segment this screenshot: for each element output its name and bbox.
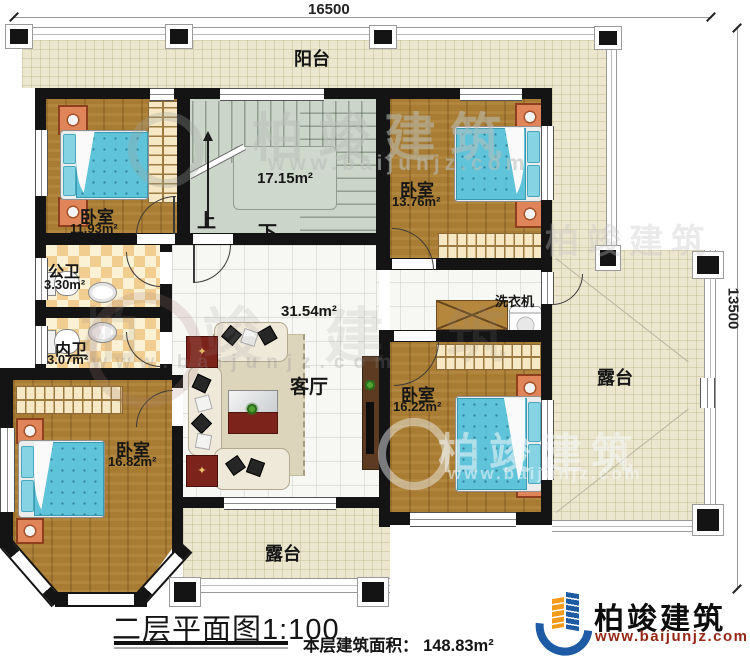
window: [410, 512, 516, 527]
terrace-south-label: 露台: [265, 540, 301, 566]
door-opening: [160, 332, 172, 364]
window: [541, 400, 554, 480]
bedroom-ne-area: 13.76m²: [392, 194, 440, 209]
company-logo: [536, 588, 592, 650]
pillow: [63, 166, 76, 196]
window: [220, 88, 324, 101]
terrace-east-strip-railing: [606, 40, 617, 252]
floor-plan: 16500 13500 17.15m² 上 下: [0, 0, 750, 658]
window: [35, 130, 48, 196]
wall: [177, 99, 190, 245]
wall: [376, 99, 390, 270]
sink: [88, 322, 117, 343]
logo-url-text: www.baijunjz.com: [595, 628, 748, 645]
wardrobe: [148, 101, 178, 203]
wardrobe: [16, 386, 123, 414]
wardrobe: [436, 344, 543, 370]
pillow: [528, 444, 541, 484]
tv: [366, 402, 374, 454]
terrace-east-railing-bottom: [552, 520, 712, 532]
title-underline-shadow: [114, 647, 288, 649]
pillow: [527, 131, 540, 163]
hall-area-label: 31.54m²: [281, 303, 337, 320]
bedroom-sw-area: 16.82m²: [108, 454, 156, 469]
bedroom-nw-area: 11.93m²: [70, 221, 118, 236]
dimension-top-line: [13, 17, 712, 18]
wall: [35, 307, 160, 318]
logo-building-icon: [552, 597, 564, 629]
end-table: ✦: [186, 455, 218, 487]
door-opening: [137, 234, 175, 244]
dimension-top-label: 16500: [308, 1, 350, 18]
door-opening: [172, 388, 183, 426]
washer-label: 洗衣机: [495, 291, 534, 310]
door-leaf: [193, 245, 195, 282]
window: [460, 88, 522, 101]
column: [596, 246, 620, 270]
bath-inner-area: 3.07m²: [47, 352, 88, 367]
column: [693, 505, 723, 535]
balcony-label: 阳台: [294, 45, 330, 71]
dimension-right-label: 13500: [724, 288, 741, 330]
column: [6, 25, 32, 48]
column: [166, 25, 192, 48]
pillow: [21, 480, 34, 512]
bath-public-area: 3.30m²: [44, 277, 85, 292]
wall: [0, 368, 172, 380]
wall: [379, 270, 390, 330]
terrace-east-strip: [552, 40, 608, 252]
door-opening: [394, 331, 436, 341]
door-opening: [160, 252, 172, 284]
pillow: [63, 134, 76, 164]
stair-up-label: 上: [197, 206, 216, 233]
logo-building-icon: [566, 592, 579, 631]
wall: [379, 330, 390, 517]
column: [370, 26, 396, 48]
wardrobe: [438, 233, 543, 259]
plant: [365, 380, 375, 390]
stair-landing: 17.15m²: [233, 146, 337, 210]
bedroom-se-area: 16.22m²: [393, 399, 441, 414]
window: [150, 88, 174, 101]
column: [170, 578, 200, 606]
title-underline: [114, 641, 288, 645]
column: [693, 252, 723, 278]
logo-swoosh-icon: [524, 587, 604, 658]
pillow: [527, 165, 540, 197]
sofa-pillow: [195, 433, 212, 450]
floor-area-note: 本层建筑面积： 148.83m²: [303, 632, 494, 656]
living-label: 客厅: [290, 372, 328, 399]
nightstand: [16, 518, 44, 544]
door-opening: [193, 234, 233, 244]
column: [595, 27, 621, 49]
pillow: [528, 402, 541, 442]
stairwell-area-label: 17.15m²: [257, 170, 313, 187]
window: [541, 126, 554, 200]
stair-arrow-head: [203, 131, 213, 141]
terrace-east-gate: [700, 378, 715, 408]
end-table: ✦: [186, 336, 218, 368]
sink: [88, 282, 117, 303]
plant: [245, 402, 259, 416]
column: [358, 578, 388, 606]
window: [224, 497, 336, 510]
terrace-east-label: 露台: [597, 364, 633, 390]
pillow: [21, 446, 34, 478]
window: [0, 428, 15, 512]
door-leaf: [173, 196, 175, 234]
